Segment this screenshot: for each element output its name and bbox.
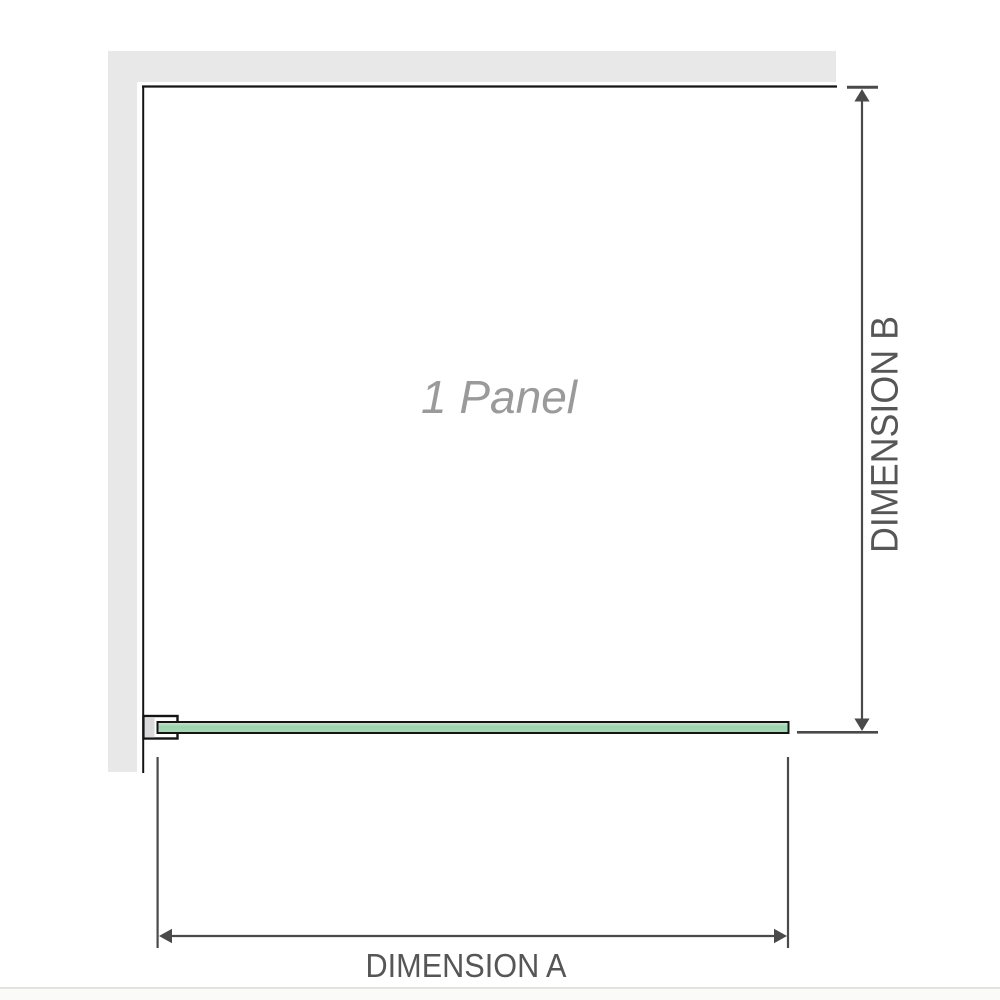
svg-text:DIMENSION A: DIMENSION A xyxy=(366,947,567,984)
svg-text:1 Panel: 1 Panel xyxy=(421,371,579,423)
svg-text:DIMENSION B: DIMENSION B xyxy=(865,316,907,553)
